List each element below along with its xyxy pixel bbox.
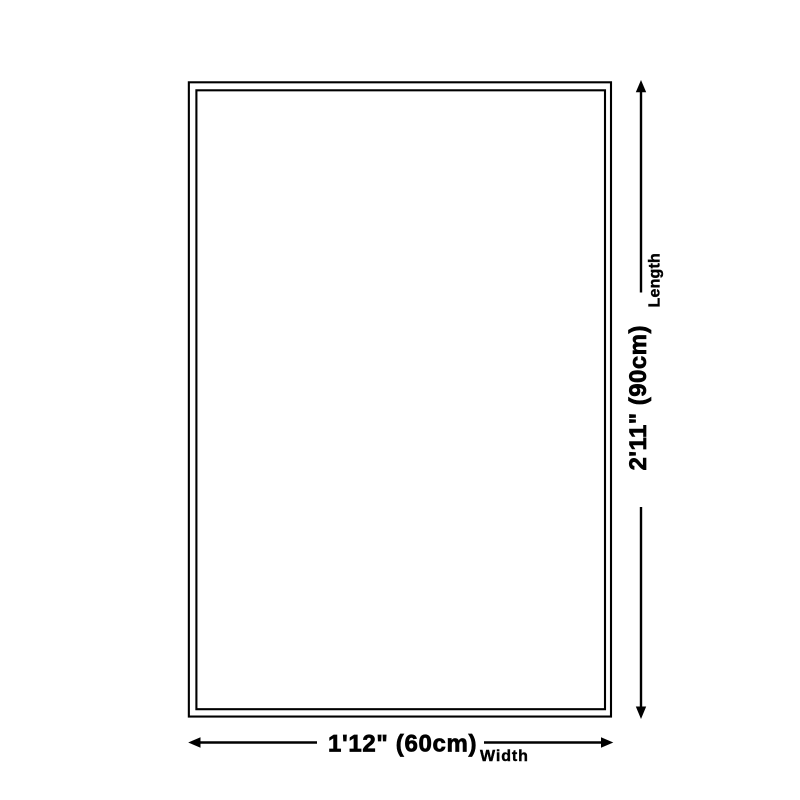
svg-text:1'12" (60cm): 1'12" (60cm): [328, 730, 477, 757]
svg-text:Length: Length: [647, 253, 664, 308]
svg-text:Width: Width: [480, 748, 529, 765]
svg-text:2'11" (90cm): 2'11" (90cm): [625, 326, 652, 471]
